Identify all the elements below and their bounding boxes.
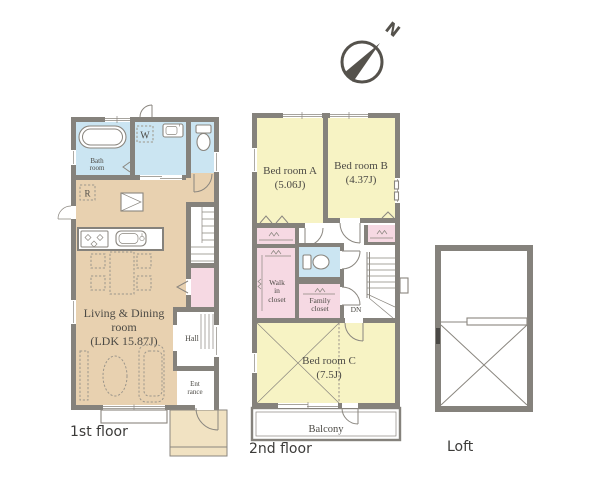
floor-plan-canvas: N Bath room W — [0, 0, 600, 480]
loft-plan — [430, 240, 550, 470]
bathtub-icon — [79, 126, 126, 148]
bedroom-b-label: Bed room B — [334, 160, 388, 172]
living-room-area: (LDK 15.87J) — [90, 334, 157, 348]
svg-text:in: in — [274, 286, 280, 295]
entrance-label: Ent — [190, 380, 200, 388]
compass-icon: N — [323, 6, 413, 96]
first-floor-plan: Bath room W R — [55, 95, 255, 470]
svg-text:closet: closet — [268, 295, 286, 304]
loft-rail — [467, 318, 527, 325]
balcony-label: Balcony — [309, 424, 345, 435]
down-label: DN — [351, 305, 362, 314]
sliding-door-icon — [140, 175, 182, 180]
bath-window-top — [105, 116, 130, 123]
svg-text:room: room — [90, 164, 105, 172]
casement-window-top — [140, 105, 152, 117]
living-room-label: Living & Dining — [84, 306, 165, 320]
bedroom-b-window-right — [395, 178, 401, 203]
bedroom-c-area: (7.5J) — [316, 369, 342, 381]
closet-1f — [191, 268, 214, 307]
loft-ladder-mark — [436, 328, 440, 344]
cabinet-icon — [121, 193, 143, 211]
toilet-icon — [303, 255, 329, 269]
bedroom-c-label: Bed room C — [302, 355, 356, 367]
closet-2f-left — [257, 228, 295, 244]
stairs-1f — [191, 207, 214, 263]
bedroom-a-label: Bed room A — [263, 165, 317, 177]
porch-step — [170, 447, 227, 456]
hall-door-gap — [173, 325, 177, 351]
hall-window-right — [214, 325, 219, 357]
casement-window-left — [58, 206, 76, 219]
loft-room — [438, 248, 530, 409]
north-label: N — [382, 18, 404, 41]
fridge-label: R — [84, 189, 90, 199]
svg-text:closet: closet — [311, 304, 329, 313]
svg-text:room: room — [111, 320, 137, 334]
living-window-left — [71, 300, 76, 324]
hall-label: Hall — [185, 334, 200, 343]
bath-window — [71, 150, 76, 165]
first-floor-caption: 1st floor — [70, 424, 128, 440]
bedroom-a-window-left — [252, 148, 257, 172]
stair-window — [400, 278, 408, 293]
toilet-icon — [196, 125, 211, 151]
bedroom-b-window-top — [330, 112, 368, 119]
second-floor-plan: Bed room A (5.06J) Bed room B (4.37J) Wa… — [245, 95, 445, 470]
bedroom-a-window-top — [283, 112, 322, 119]
bedroom-c-window-left — [252, 353, 257, 373]
washer-label: W — [140, 131, 150, 142]
bedroom-a-area: (5.06J) — [275, 179, 306, 191]
sink-icon — [163, 124, 183, 137]
bedroom-b-area: (4.37J) — [346, 174, 377, 186]
terrace-step — [101, 410, 167, 423]
second-floor-caption: 2nd floor — [249, 441, 312, 457]
loft-caption: Loft — [447, 439, 473, 455]
kitchen-sink-icon — [116, 231, 146, 246]
balcony-sliding-window — [278, 402, 338, 409]
toilet-window-right — [214, 152, 219, 172]
svg-text:rance: rance — [187, 388, 202, 396]
